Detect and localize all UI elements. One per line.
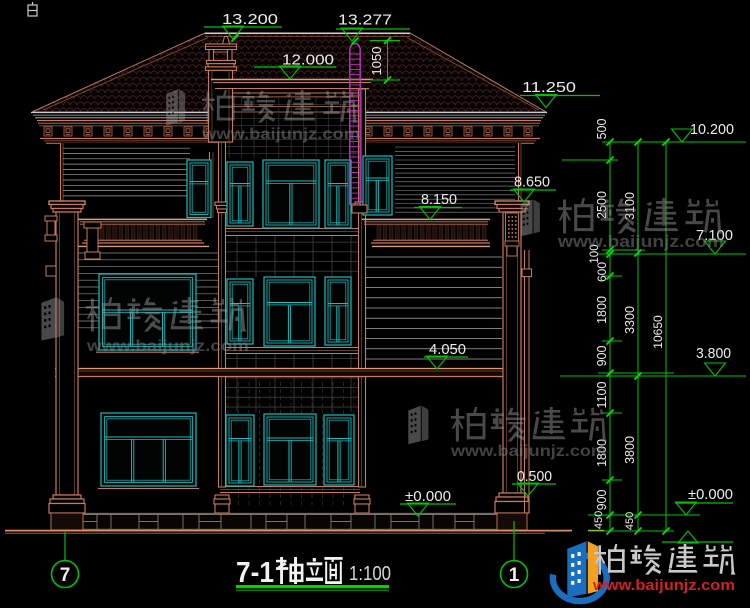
svg-text:1100: 1100 xyxy=(595,382,609,409)
svg-text:600: 600 xyxy=(595,262,609,282)
svg-text:www.baijunjz.com: www.baijunjz.com xyxy=(86,338,249,355)
svg-text:4.050: 4.050 xyxy=(429,341,466,358)
svg-text:8.150: 8.150 xyxy=(421,191,457,208)
svg-text:7: 7 xyxy=(60,565,71,586)
svg-text:www.baijunjz.com: www.baijunjz.com xyxy=(592,577,735,594)
svg-text:0.500: 0.500 xyxy=(517,468,552,485)
svg-text:3800: 3800 xyxy=(623,436,637,464)
svg-text:10.200: 10.200 xyxy=(690,121,734,138)
svg-text:500: 500 xyxy=(595,119,609,140)
svg-text:www.baijunjz.com: www.baijunjz.com xyxy=(557,233,724,251)
svg-text:450: 450 xyxy=(624,512,636,530)
svg-text:±0.000: ±0.000 xyxy=(405,488,451,505)
svg-text:8.650: 8.650 xyxy=(514,174,550,191)
svg-text:±0.000: ±0.000 xyxy=(688,486,733,503)
svg-text:www.baijunjz.com: www.baijunjz.com xyxy=(201,126,360,143)
svg-text:13.277: 13.277 xyxy=(338,12,392,29)
svg-text:1050: 1050 xyxy=(369,47,384,76)
svg-text:12.000: 12.000 xyxy=(282,52,334,69)
svg-text:7-1: 7-1 xyxy=(236,557,274,589)
svg-text:900: 900 xyxy=(595,490,609,511)
svg-text:3300: 3300 xyxy=(623,306,637,334)
svg-text:11.250: 11.250 xyxy=(522,79,576,96)
svg-text:13.200: 13.200 xyxy=(222,11,278,28)
svg-text:1:100: 1:100 xyxy=(349,563,391,585)
svg-text:10650: 10650 xyxy=(651,315,665,349)
svg-text:1: 1 xyxy=(509,565,520,586)
svg-text:1800: 1800 xyxy=(595,296,609,324)
svg-text:900: 900 xyxy=(595,346,609,367)
svg-text:3.800: 3.800 xyxy=(696,345,731,362)
svg-text:450: 450 xyxy=(593,511,605,529)
svg-text:www.baijunjz.com: www.baijunjz.com xyxy=(450,443,607,460)
